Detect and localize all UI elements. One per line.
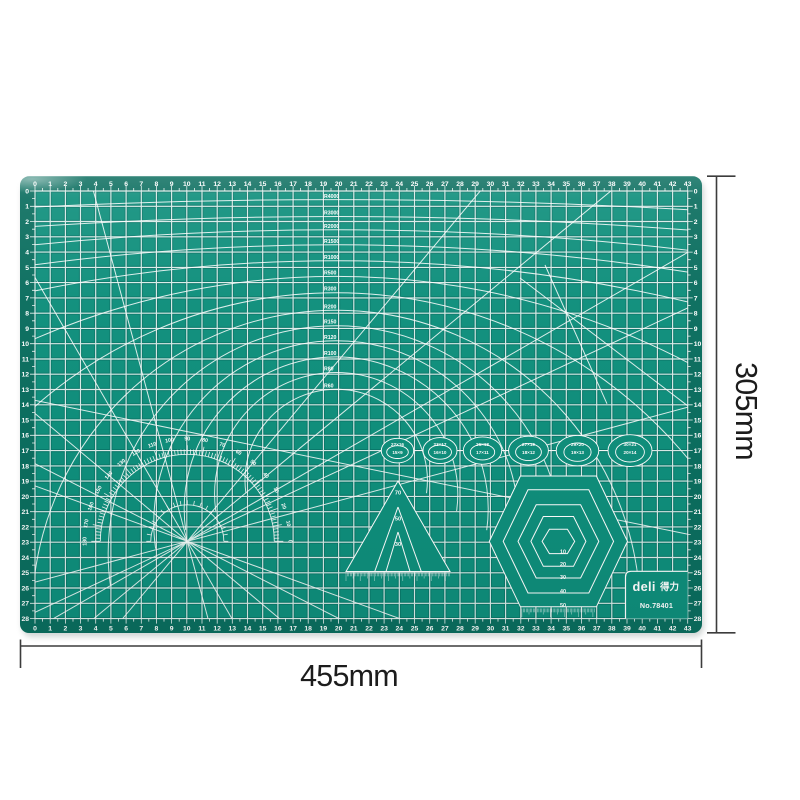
svg-text:305mm: 305mm (729, 362, 763, 460)
svg-text:455mm: 455mm (300, 659, 398, 693)
